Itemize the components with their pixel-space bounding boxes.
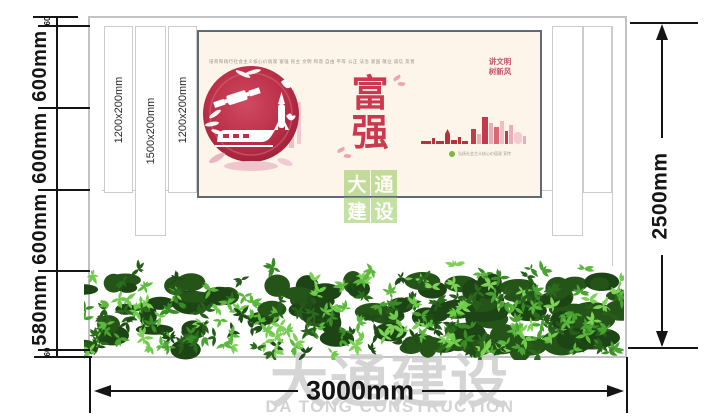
watermark-char: 设	[371, 197, 397, 223]
panel-left-1: 1200x200mm	[104, 26, 133, 193]
dim-tick	[38, 189, 90, 191]
panel-left-1-label: 1200x200mm	[113, 76, 125, 143]
panel-left-3-label: 1200x200mm	[177, 76, 189, 143]
dim-left-60-top: 60	[44, 17, 52, 26]
center-watermark: 大 通 建 设	[344, 170, 397, 223]
watermark-char: 大	[344, 170, 370, 196]
dim-left-600-3: 600mm	[30, 193, 50, 264]
dim-left-600-2: 600mm	[30, 112, 50, 183]
culture-wall-drawing: 1200x200mm 1500x200mm 1200x200mm 培育和践行社会…	[0, 0, 720, 420]
dim-extension	[626, 357, 628, 413]
poster-slogan: 讲文明 树新风	[480, 57, 520, 77]
theme-char-bottom: 强	[349, 113, 391, 152]
city-skyline-icon	[421, 106, 535, 152]
green-hedge	[84, 258, 624, 360]
dim-tick	[33, 16, 78, 18]
dim-left-580: 580mm	[30, 274, 50, 345]
arrow-up-icon	[656, 24, 668, 40]
leaf-decoration-icon	[337, 147, 346, 153]
dim-right-total: 2500mm	[650, 152, 671, 239]
poster-footnote-text: 弘扬社会主义核心价值观 宣传	[458, 151, 511, 157]
theme-characters: 富 强	[349, 74, 391, 152]
panel-left-2-label: 1500x200mm	[145, 98, 157, 165]
green-dot-icon	[449, 151, 455, 157]
dim-tick	[628, 347, 698, 349]
panel-right-long	[552, 26, 583, 236]
dim-tick	[38, 107, 90, 109]
watermark-char: 建	[344, 197, 370, 223]
dim-bottom-total: 3000mm	[306, 376, 414, 407]
dim-tick	[38, 270, 90, 272]
panel-left-3: 1200x200mm	[168, 26, 197, 193]
bottom-dimension-line	[108, 390, 298, 392]
poster-slogan-line2: 树新风	[480, 67, 520, 77]
arrow-left-icon	[94, 385, 111, 397]
papercut-emblem-icon	[201, 62, 307, 178]
watermark-char: 通	[371, 170, 397, 196]
right-dimension-line	[661, 28, 663, 138]
arrow-right-icon	[607, 385, 624, 397]
theme-char-top: 富	[349, 74, 391, 113]
left-dimension-line	[56, 16, 58, 358]
wall-right-margin-line	[612, 26, 613, 266]
bottom-dimension-line	[422, 390, 610, 392]
dim-extension	[89, 357, 91, 413]
dim-left-600-1: 600mm	[30, 30, 50, 101]
poster-footnote: 弘扬社会主义核心价值观 宣传	[449, 151, 511, 157]
leaf-decoration-icon	[393, 74, 402, 81]
panel-right-short	[583, 26, 612, 193]
panel-left-2: 1500x200mm	[135, 26, 166, 236]
leaf-decoration-icon	[344, 153, 352, 159]
poster-slogan-line1: 讲文明	[480, 57, 520, 67]
dim-left-60-bottom: 60	[44, 348, 52, 357]
arrow-down-icon	[656, 331, 668, 347]
leaf-decoration-icon	[398, 81, 406, 87]
